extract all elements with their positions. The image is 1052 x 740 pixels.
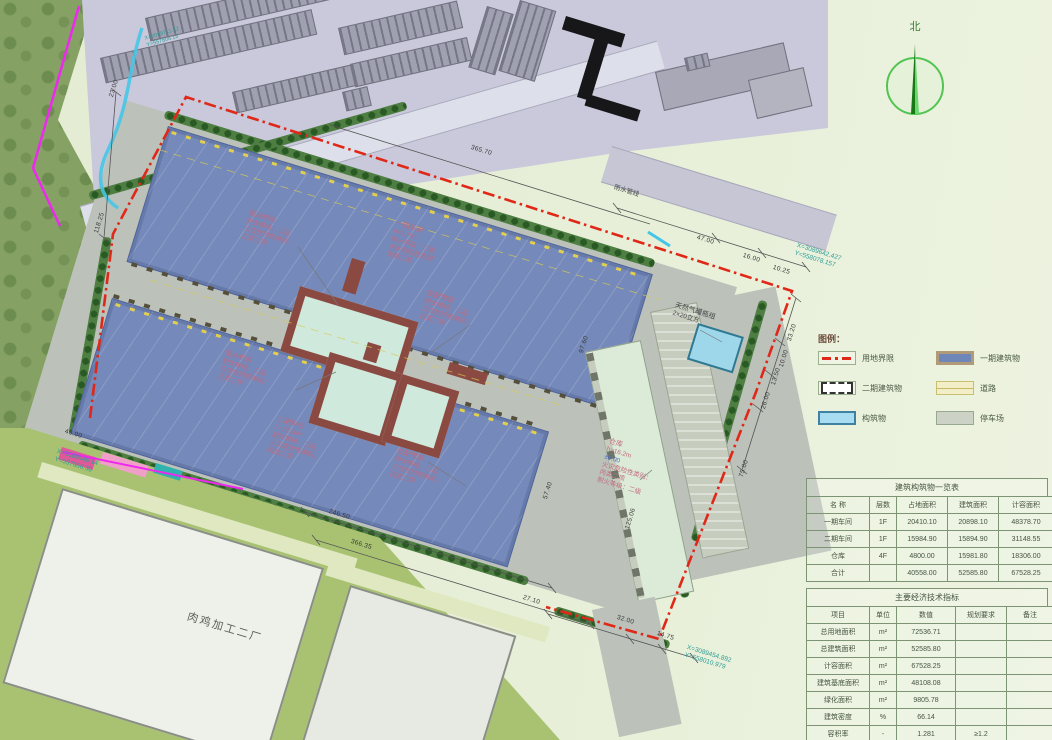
- dimension-text: 16.00: [742, 252, 761, 264]
- legend-item-parking: 停车场: [936, 411, 1050, 425]
- data-table: 项目单位数值规划要求备注总用地面积m²72536.71总建筑面积m²52585.…: [806, 606, 1052, 740]
- coordinate-marker: X=3089454.892Y=558010.979: [684, 644, 732, 672]
- data-table: 名 称层数占地面积建筑面积计容面积一期车间1F20410.1020898.104…: [806, 496, 1052, 582]
- dimension-text: 27.10: [522, 594, 541, 606]
- north-label: 北: [880, 18, 950, 34]
- table-row: 绿化面积m²9805.78: [807, 692, 1052, 709]
- table-title: 主要经济技术指标: [806, 588, 1048, 606]
- legend: 图例： 用地界限 一期建筑物 二期建筑物 道路 构筑物: [818, 332, 1050, 425]
- site-plan-canvas: 制冷机房耐火等级：二级火灾危险性类别：乙类二项 一期车间h=9.75m耐火等级：…: [0, 0, 1052, 740]
- phase2-swatch: [818, 381, 856, 395]
- legend-title: 图例：: [818, 332, 1050, 345]
- table-row: 容积率-1.281≥1.2: [807, 726, 1052, 740]
- legend-item-structure: 构筑物: [818, 411, 936, 425]
- boundary-swatch: [818, 351, 856, 365]
- legend-item-phase1: 一期建筑物: [936, 351, 1050, 365]
- indicators-table: 主要经济技术指标项目单位数值规划要求备注总用地面积m²72536.71总建筑面积…: [806, 588, 1048, 740]
- buildings-table: 建筑构筑物一览表名 称层数占地面积建筑面积计容面积一期车间1F20410.102…: [806, 478, 1048, 582]
- stream-line: [648, 232, 670, 246]
- table-row: 一期车间1F20410.1020898.1048378.70: [807, 514, 1052, 531]
- table-row: 建筑密度%66.14: [807, 709, 1052, 726]
- legend-item-phase2: 二期建筑物: [818, 381, 936, 395]
- legend-item-boundary: 用地界限: [818, 351, 936, 365]
- structure-swatch: [818, 411, 856, 425]
- road-swatch: [936, 381, 974, 395]
- phase1-swatch: [936, 351, 974, 365]
- table-row: 总用地面积m²72536.71: [807, 624, 1052, 641]
- table-row: 合计40558.0052585.8067528.25: [807, 565, 1052, 582]
- north-arrow-icon: [880, 34, 950, 122]
- legend-item-road: 道路: [936, 381, 1050, 395]
- table-row: 二期车间1F15984.9015894.9031148.55: [807, 531, 1052, 548]
- parking-swatch: [936, 411, 974, 425]
- table-row: 计容面积m²67528.25: [807, 658, 1052, 675]
- south-exit-road: [592, 597, 682, 737]
- table-row: 仓库4F4800.0015981.8018306.00: [807, 548, 1052, 565]
- table-title: 建筑构筑物一览表: [806, 478, 1048, 496]
- table-row: 建筑基底面积m²48108.08: [807, 675, 1052, 692]
- dimension-text: 10.25: [772, 264, 791, 276]
- dimension-text: 47.00: [696, 234, 715, 246]
- table-row: 总建筑面积m²52585.80: [807, 641, 1052, 658]
- north-compass: 北: [880, 18, 950, 118]
- dimension-text: 33.20: [786, 323, 798, 342]
